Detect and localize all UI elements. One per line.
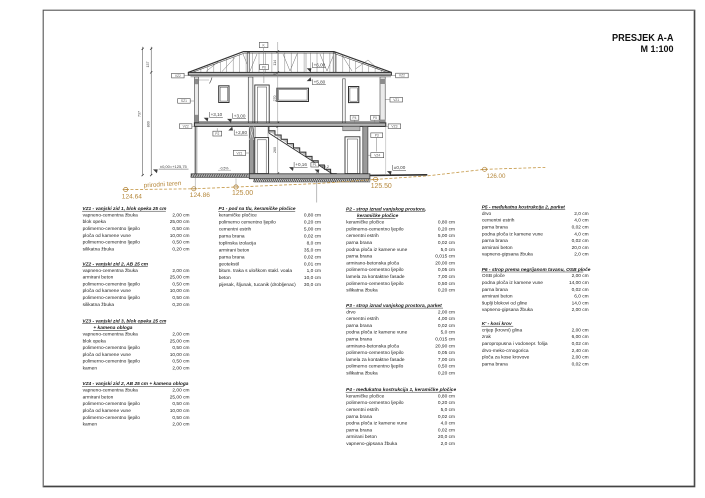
svg-text:P5: P5 xyxy=(373,116,377,120)
svg-text:parna brana: parna brana xyxy=(482,225,508,231)
svg-text:0,015 cm: 0,015 cm xyxy=(435,254,455,260)
svg-text:armirano-betonska ploča: armirano-betonska ploča xyxy=(346,343,399,349)
svg-text:vapneno-cementna žbuka: vapneno-cementna žbuka xyxy=(83,268,139,274)
svg-text:2,00 cm: 2,00 cm xyxy=(172,332,189,338)
svg-text:35,0 cm: 35,0 cm xyxy=(304,247,321,253)
svg-text:VZ2: VZ2 xyxy=(183,124,189,128)
svg-text:0,02 cm: 0,02 cm xyxy=(438,240,455,246)
svg-text:6,00 cm: 6,00 cm xyxy=(572,334,589,340)
svg-text:kamen: kamen xyxy=(83,366,98,372)
svg-text:blok opeka: blok opeka xyxy=(83,219,107,225)
svg-text:ploča od kamene vune: ploča od kamene vune xyxy=(83,408,132,414)
svg-text:0,50 cm: 0,50 cm xyxy=(438,281,455,287)
svg-text:114: 114 xyxy=(273,60,277,66)
svg-text:0,20 cm: 0,20 cm xyxy=(172,302,189,308)
svg-text:0,50 cm: 0,50 cm xyxy=(172,226,189,232)
svg-text:+5,80: +5,80 xyxy=(314,80,326,85)
svg-text:lamela za kontaktne fasade: lamela za kontaktne fasade xyxy=(346,274,405,280)
svg-text:keramičke pločice: keramičke pločice xyxy=(346,220,384,226)
svg-text:-0,5%: -0,5% xyxy=(220,166,229,170)
svg-text:cementni estrih: cementni estrih xyxy=(219,227,252,233)
svg-text:silikatna žbuka: silikatna žbuka xyxy=(83,302,115,308)
svg-text:P3: P3 xyxy=(375,133,379,137)
svg-text:P6: P6 xyxy=(262,66,266,70)
svg-text:0,02 cm: 0,02 cm xyxy=(572,287,589,293)
svg-text:0,80 cm: 0,80 cm xyxy=(438,393,455,399)
svg-text:2,0 cm: 2,0 cm xyxy=(574,211,588,217)
svg-text:podna ploča iz kamene vune: podna ploča iz kamene vune xyxy=(346,330,407,336)
svg-text:4,00 cm: 4,00 cm xyxy=(438,316,455,322)
svg-text:P2: P2 xyxy=(215,132,219,136)
svg-text:polimerno-cementno ljepilo: polimerno-cementno ljepilo xyxy=(83,359,141,365)
svg-text:silikatna žbuka: silikatna žbuka xyxy=(346,371,378,377)
svg-text:260: 260 xyxy=(273,147,277,153)
svg-text:0,50 cm: 0,50 cm xyxy=(172,240,189,246)
svg-text:25,00 cm: 25,00 cm xyxy=(170,219,190,225)
svg-text:kamen: kamen xyxy=(83,422,98,428)
svg-text:pijesak, šljunak, tucanik (dro: pijesak, šljunak, tucanik (drobljenac) xyxy=(219,282,296,288)
svg-text:0,02 cm: 0,02 cm xyxy=(572,341,589,347)
svg-text:0,80 cm: 0,80 cm xyxy=(304,213,321,219)
svg-text:drvo-meko-crnogorica: drvo-meko-crnogorica xyxy=(482,348,529,354)
svg-text:M 1:100: M 1:100 xyxy=(641,43,674,54)
svg-text:keramičke pločice: keramičke pločice xyxy=(346,393,384,399)
svg-text:800: 800 xyxy=(147,121,151,127)
svg-text:±0,00: ±0,00 xyxy=(394,165,406,170)
svg-text:1,0 cm: 1,0 cm xyxy=(307,268,321,274)
svg-text:0,50 cm: 0,50 cm xyxy=(172,345,189,351)
svg-text:P1: P1 xyxy=(313,163,317,167)
svg-text:polimerno-cementno ljepilo: polimerno-cementno ljepilo xyxy=(83,401,141,407)
svg-text:5,00 cm: 5,00 cm xyxy=(304,227,321,233)
svg-text:0,50 cm: 0,50 cm xyxy=(172,295,189,301)
svg-text:25,00 cm: 25,00 cm xyxy=(170,394,190,400)
svg-text:0,02 cm: 0,02 cm xyxy=(572,361,589,367)
svg-text:0,50 cm: 0,50 cm xyxy=(438,364,455,370)
svg-text:vapneno-gipsana žbuka: vapneno-gipsana žbuka xyxy=(346,441,397,447)
svg-text:125.00: 125.00 xyxy=(232,190,253,197)
svg-text:10,0 cm: 10,0 cm xyxy=(304,275,321,281)
svg-text:124.86: 124.86 xyxy=(190,192,211,199)
svg-text:25,00 cm: 25,00 cm xyxy=(170,275,190,281)
svg-text:cementni estrih: cementni estrih xyxy=(346,233,379,239)
svg-text:ploča od kamene vune: ploča od kamene vune xyxy=(83,233,132,239)
svg-text:VZ1: VZ1 xyxy=(236,151,242,155)
svg-text:polimerno-cementno ljepilo: polimerno-cementno ljepilo xyxy=(83,226,141,232)
svg-text:drvo: drvo xyxy=(482,211,492,217)
svg-text:VZ2: VZ2 xyxy=(399,74,405,78)
svg-text:2,00 cm: 2,00 cm xyxy=(172,366,189,372)
svg-text:0,50 cm: 0,50 cm xyxy=(172,359,189,365)
svg-text:2,00 cm: 2,00 cm xyxy=(572,355,589,361)
svg-text:parna brana: parna brana xyxy=(482,287,508,293)
svg-text:armirani beton: armirani beton xyxy=(482,294,513,300)
svg-text:5,0 cm: 5,0 cm xyxy=(441,247,455,253)
svg-text:beton: beton xyxy=(219,275,231,281)
svg-text:2,00 cm: 2,00 cm xyxy=(172,388,189,394)
svg-text:±0,00=+125,75: ±0,00=+125,75 xyxy=(160,164,188,169)
svg-text:parna brana: parna brana xyxy=(346,414,372,420)
svg-text:armirani beton: armirani beton xyxy=(83,275,114,281)
svg-text:0,02 cm: 0,02 cm xyxy=(438,414,455,420)
svg-text:zrak: zrak xyxy=(482,334,492,340)
svg-text:parna brana: parna brana xyxy=(482,361,508,367)
svg-text:podna ploča iz kamene vune: podna ploča iz kamene vune xyxy=(482,280,543,286)
svg-text:cementni estrih: cementni estrih xyxy=(346,316,379,322)
svg-text:5,0 cm: 5,0 cm xyxy=(441,330,455,336)
svg-text:vapneno-cementna žbuka: vapneno-cementna žbuka xyxy=(83,388,139,394)
svg-text:SZ1: SZ1 xyxy=(181,99,187,103)
svg-text:6,0 cm: 6,0 cm xyxy=(574,294,588,300)
svg-text:OSB ploče: OSB ploče xyxy=(482,273,505,279)
svg-text:0,02 cm: 0,02 cm xyxy=(304,233,321,239)
svg-text:polimerno-cementno ljepilo: polimerno-cementno ljepilo xyxy=(83,281,141,287)
svg-text:30,0 cm: 30,0 cm xyxy=(304,282,321,288)
svg-text:4,0 cm: 4,0 cm xyxy=(441,421,455,427)
svg-text:blok opeka: blok opeka xyxy=(83,338,107,344)
svg-text:polimerno cementno ljepilo: polimerno cementno ljepilo xyxy=(219,220,276,226)
svg-text:bitum. traka s uloškom stakl.: bitum. traka s uloškom stakl. voala xyxy=(219,268,293,274)
svg-text:7,00 cm: 7,00 cm xyxy=(438,357,455,363)
svg-text:2,0 cm: 2,0 cm xyxy=(441,441,455,447)
svg-text:ploča za kose krovove: ploča za kose krovove xyxy=(482,355,530,361)
svg-text:šuplji blokovi od gline: šuplji blokovi od gline xyxy=(482,300,528,306)
svg-text:0,01 cm: 0,01 cm xyxy=(304,261,321,267)
svg-text:P4: P4 xyxy=(352,116,356,120)
svg-text:VZ1: VZ1 xyxy=(393,98,399,102)
svg-text:polimerno-cementno ljepilo: polimerno-cementno ljepilo xyxy=(83,295,141,301)
svg-text:paropropusna i vodonepr. folij: paropropusna i vodonepr. folija xyxy=(482,341,548,347)
svg-text:0,20 cm: 0,20 cm xyxy=(438,400,455,406)
svg-text:podna ploča iz kamene vune: podna ploča iz kamene vune xyxy=(482,231,543,237)
svg-text:armirano-betonska ploča: armirano-betonska ploča xyxy=(346,260,399,266)
svg-text:armirani beton: armirani beton xyxy=(219,247,250,253)
svg-text:+3,10: +3,10 xyxy=(211,112,223,117)
svg-text:0,20 cm: 0,20 cm xyxy=(172,246,189,252)
svg-text:2,40 cm: 2,40 cm xyxy=(572,348,589,354)
svg-text:0,05 cm: 0,05 cm xyxy=(438,267,455,273)
svg-text:2,00 cm: 2,00 cm xyxy=(438,309,455,315)
svg-text:0,02 cm: 0,02 cm xyxy=(438,427,455,433)
svg-text:20,00 cm: 20,00 cm xyxy=(435,260,455,266)
svg-text:vapneno-gipsana žbuka: vapneno-gipsana žbuka xyxy=(482,307,533,313)
svg-text:lamela za kontaktne fasade: lamela za kontaktne fasade xyxy=(346,357,405,363)
svg-text:ploča od kamene vune: ploča od kamene vune xyxy=(83,288,132,294)
svg-text:20,0 cm: 20,0 cm xyxy=(438,434,455,440)
svg-text:10,00 cm: 10,00 cm xyxy=(170,233,190,239)
svg-text:parna brana: parna brana xyxy=(346,337,372,343)
svg-text:0,20 cm: 0,20 cm xyxy=(438,288,455,294)
svg-text:0,50 cm: 0,50 cm xyxy=(172,401,189,407)
svg-text:4,0 cm: 4,0 cm xyxy=(574,218,588,224)
svg-text:parna brana: parna brana xyxy=(346,254,372,260)
svg-text:0,02 cm: 0,02 cm xyxy=(572,225,589,231)
svg-text:10,00 cm: 10,00 cm xyxy=(170,288,190,294)
svg-text:0,50 cm: 0,50 cm xyxy=(172,281,189,287)
svg-text:toplinska izolacija: toplinska izolacija xyxy=(219,240,257,246)
svg-text:20: 20 xyxy=(273,72,277,76)
svg-text:podna ploča iz kamene vune: podna ploča iz kamene vune xyxy=(346,247,407,253)
svg-text:0,02 cm: 0,02 cm xyxy=(572,238,589,244)
svg-text:2,00 cm: 2,00 cm xyxy=(572,307,589,313)
svg-text:+2,80: +2,80 xyxy=(235,130,247,135)
svg-text:parna brana: parna brana xyxy=(346,427,372,433)
svg-text:2,0 cm: 2,0 cm xyxy=(574,252,588,258)
svg-text:124.64: 124.64 xyxy=(122,194,143,201)
svg-text:parna brana: parna brana xyxy=(346,240,372,246)
svg-text:crijep (krovni) glina: crijep (krovni) glina xyxy=(482,327,523,333)
svg-text:polimerno-cementno ljepilo: polimerno-cementno ljepilo xyxy=(346,400,404,406)
svg-text:VZ2: VZ2 xyxy=(175,74,181,78)
svg-text:8,0 cm: 8,0 cm xyxy=(307,240,321,246)
svg-text:14,0 cm: 14,0 cm xyxy=(572,300,589,306)
svg-text:+0,16: +0,16 xyxy=(295,162,307,167)
svg-text:polimerno cementno ljepilo: polimerno cementno ljepilo xyxy=(346,364,403,370)
svg-text:keramičke pločice: keramičke pločice xyxy=(219,213,257,219)
svg-text:0,015 cm: 0,015 cm xyxy=(435,337,455,343)
svg-text:2,00 cm: 2,00 cm xyxy=(572,273,589,279)
svg-text:7,00 cm: 7,00 cm xyxy=(438,274,455,280)
svg-text:0,50 cm: 0,50 cm xyxy=(172,415,189,421)
svg-text:VZ3: VZ3 xyxy=(391,124,397,128)
svg-text:10,00 cm: 10,00 cm xyxy=(170,408,190,414)
svg-text:ploča od kamene vune: ploča od kamene vune xyxy=(83,352,132,358)
svg-text:vapneno-gipsana žbuka: vapneno-gipsana žbuka xyxy=(482,252,533,258)
svg-text:14,00 cm: 14,00 cm xyxy=(569,280,589,286)
svg-text:10,00 cm: 10,00 cm xyxy=(170,352,190,358)
svg-text:parna brana: parna brana xyxy=(219,254,245,260)
svg-text:polimerno-cementno ljepilo: polimerno-cementno ljepilo xyxy=(346,350,404,356)
svg-text:+3,00: +3,00 xyxy=(234,113,246,118)
svg-text:vapneno-cementna žbuka: vapneno-cementna žbuka xyxy=(83,212,139,218)
svg-text:125.50: 125.50 xyxy=(371,183,392,190)
svg-text:0,02 cm: 0,02 cm xyxy=(304,254,321,260)
svg-text:vapneno-cementna žbuka: vapneno-cementna žbuka xyxy=(83,332,139,338)
svg-text:cementni estrih: cementni estrih xyxy=(482,218,515,224)
svg-text:polimerno-cementno ljepilo: polimerno-cementno ljepilo xyxy=(83,415,141,421)
svg-text:20,0 cm: 20,0 cm xyxy=(572,245,589,251)
svg-text:polimerno-cementno ljepilo: polimerno-cementno ljepilo xyxy=(83,345,141,351)
svg-text:geotekstil: geotekstil xyxy=(219,261,239,267)
svg-text:podna ploča iz kamene vune: podna ploča iz kamene vune xyxy=(346,421,407,427)
svg-text:+6,00: +6,00 xyxy=(314,63,326,68)
svg-text:0,80 cm: 0,80 cm xyxy=(438,220,455,226)
svg-text:0,05 cm: 0,05 cm xyxy=(438,350,455,356)
svg-text:20,90 cm: 20,90 cm xyxy=(435,343,455,349)
svg-text:polimerno-cementno ljepilo: polimerno-cementno ljepilo xyxy=(346,226,404,232)
svg-text:0,20 cm: 0,20 cm xyxy=(304,220,321,226)
svg-text:cementni estrih: cementni estrih xyxy=(346,407,379,413)
svg-text:parna brana: parna brana xyxy=(482,238,508,244)
svg-text:polimerno-cementno ljepilo: polimerno-cementno ljepilo xyxy=(346,267,404,273)
svg-text:737: 737 xyxy=(138,111,142,117)
svg-text:2,00 cm: 2,00 cm xyxy=(172,268,189,274)
svg-text:silikatna žbuka: silikatna žbuka xyxy=(346,288,378,294)
svg-text:armirani beton: armirani beton xyxy=(83,394,114,400)
svg-text:2,00 cm: 2,00 cm xyxy=(172,422,189,428)
svg-text:polimerno-cementno ljepilo: polimerno-cementno ljepilo xyxy=(346,281,404,287)
svg-text:silikatna žbuka: silikatna žbuka xyxy=(83,246,115,252)
svg-text:5,0 cm: 5,0 cm xyxy=(441,407,455,413)
svg-text:126.00: 126.00 xyxy=(487,173,506,180)
svg-text:0,20 cm: 0,20 cm xyxy=(438,371,455,377)
svg-text:parna brana: parna brana xyxy=(219,233,245,239)
svg-text:±0,2: ±0,2 xyxy=(322,165,329,169)
svg-text:polimerno-cementno ljepilo: polimerno-cementno ljepilo xyxy=(83,240,141,246)
svg-text:VZ4: VZ4 xyxy=(374,154,380,158)
svg-text:25,00 cm: 25,00 cm xyxy=(170,338,190,344)
svg-text:parna brana: parna brana xyxy=(346,323,372,329)
svg-text:137: 137 xyxy=(146,62,150,68)
svg-text:0,02 cm: 0,02 cm xyxy=(438,323,455,329)
svg-text:drvo: drvo xyxy=(346,309,356,315)
svg-text:armirani beton: armirani beton xyxy=(346,434,377,440)
svg-text:2,00 cm: 2,00 cm xyxy=(572,327,589,333)
svg-text:armirani beton: armirani beton xyxy=(482,245,513,251)
svg-text:4,0 cm: 4,0 cm xyxy=(574,231,588,237)
svg-text:5,00 cm: 5,00 cm xyxy=(438,233,455,239)
svg-text:0,20 cm: 0,20 cm xyxy=(438,226,455,232)
svg-text:2,00 cm: 2,00 cm xyxy=(172,212,189,218)
